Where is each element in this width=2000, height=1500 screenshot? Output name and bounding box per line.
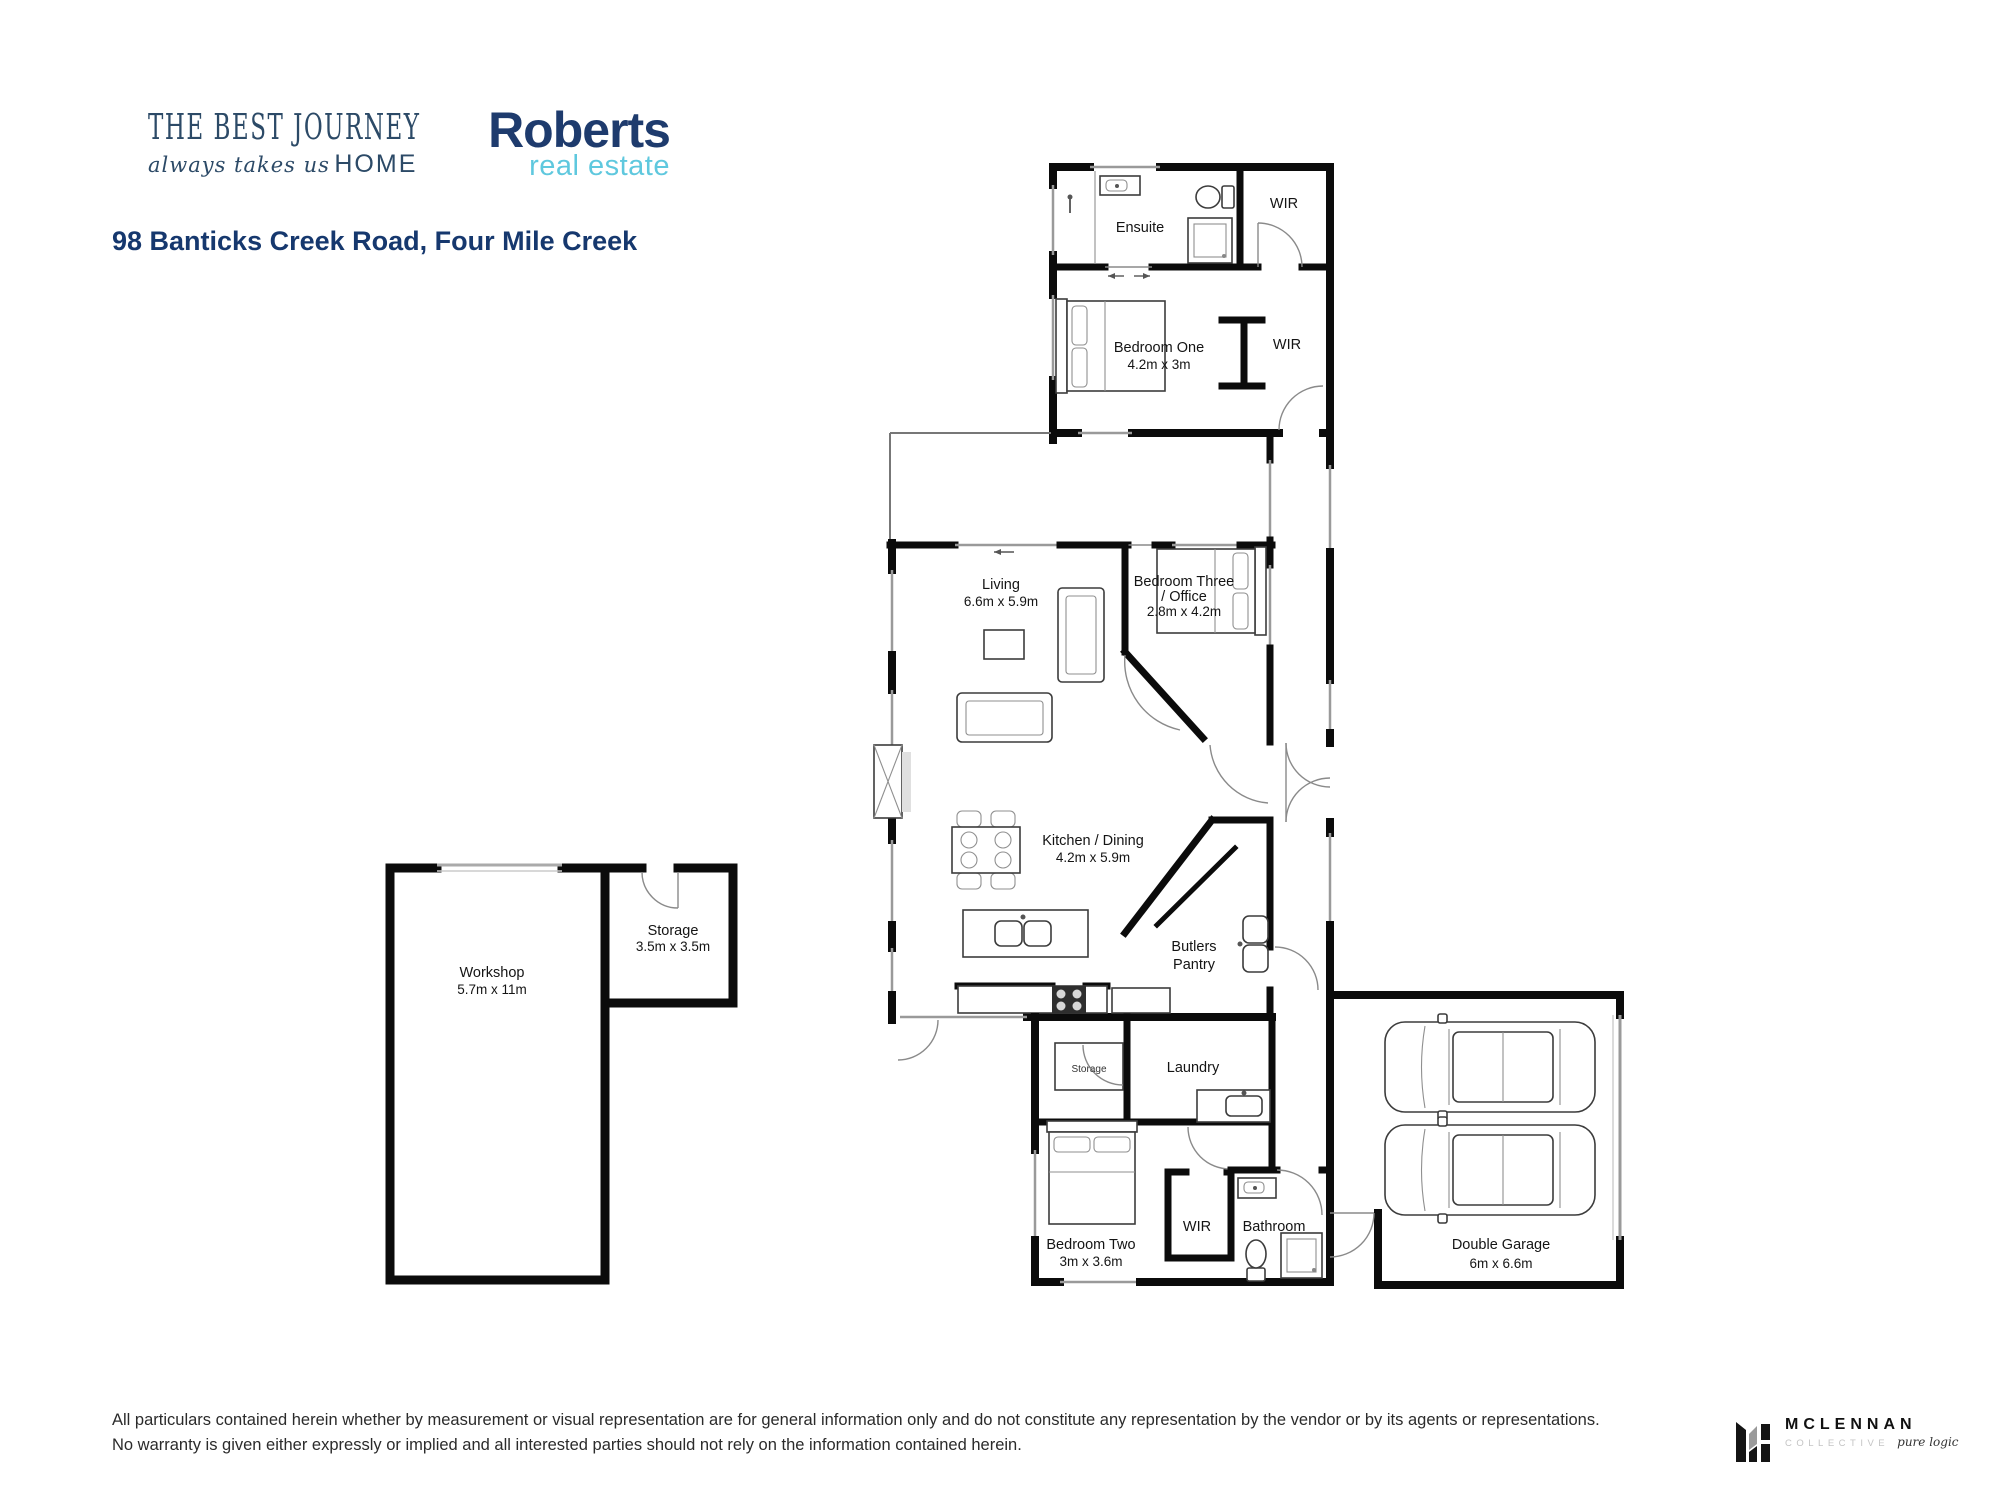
mclennan-logo-mark — [1733, 1416, 1775, 1464]
room-dims-double-garage: 6m x 6.6m — [1469, 1256, 1532, 1271]
room-dims-kitchen-dining: 4.2m x 5.9m — [1056, 850, 1130, 865]
room-label-storage-outbuilding: Storage — [648, 923, 699, 939]
room-dims-storage-outbuilding: 3.5m x 3.5m — [636, 939, 710, 954]
bedroom-two-bed — [1047, 1121, 1137, 1224]
room-label-laundry: Laundry — [1167, 1060, 1220, 1076]
disclaimer-line1: All particulars contained herein whether… — [112, 1408, 1632, 1433]
room-label-bedroom-one: Bedroom One — [1114, 340, 1204, 356]
mclennan-logo-text: MCLENNAN COLLECTIVE pure logic — [1785, 1416, 1959, 1449]
room-dims-bedroom-one: 4.2m x 3m — [1127, 357, 1190, 372]
garage-car-2 — [1385, 1117, 1595, 1223]
room-label-bedroom-two: Bedroom Two — [1046, 1237, 1135, 1253]
room-label-workshop: Workshop — [459, 965, 524, 981]
room-label-double-garage: Double Garage — [1452, 1237, 1550, 1253]
room-label-living: Living — [982, 577, 1020, 593]
floorplan-page: THE BEST JOURNEY always takes us HOME Ro… — [0, 0, 2000, 1500]
disclaimer: All particulars contained herein whether… — [112, 1408, 1632, 1458]
room-label-ensuite: Ensuite — [1116, 220, 1164, 236]
room-label-bathroom: Bathroom — [1243, 1219, 1306, 1235]
disclaimer-line2: No warranty is given either expressly or… — [112, 1433, 1632, 1458]
room-dims-bedroom-three: 2.8m x 4.2m — [1147, 604, 1221, 619]
room-label-wir3: WIR — [1183, 1219, 1211, 1235]
room-label-butlers: Butlers — [1171, 939, 1216, 955]
garage-car-1 — [1385, 1014, 1595, 1120]
floorplan-drawing: Ensuite WIR Bedroom One 4.2m x 3m WIR Li… — [0, 0, 2000, 1500]
room-label-bedroom-three-2: / Office — [1161, 589, 1207, 605]
mclennan-logo-name: MCLENNAN — [1785, 1416, 1959, 1434]
living-furniture — [957, 588, 1104, 742]
room-dims-bedroom-two: 3m x 3.6m — [1059, 1254, 1122, 1269]
room-dims-living: 6.6m x 5.9m — [964, 594, 1038, 609]
room-label-wir2: WIR — [1273, 337, 1301, 353]
room-label-storage-nook: Storage — [1071, 1064, 1106, 1075]
mclennan-logo: MCLENNAN COLLECTIVE pure logic — [1733, 1416, 1959, 1464]
room-label-bedroom-three: Bedroom Three — [1134, 574, 1234, 590]
room-label-kitchen-dining: Kitchen / Dining — [1042, 833, 1144, 849]
room-dims-workshop: 5.7m x 11m — [457, 982, 527, 997]
room-label-wir1: WIR — [1270, 196, 1298, 212]
mclennan-logo-tagline: pure logic — [1897, 1435, 1958, 1449]
entry-porch — [890, 433, 1051, 555]
room-label-pantry: Pantry — [1173, 957, 1216, 973]
mclennan-logo-sub: COLLECTIVE — [1785, 1438, 1889, 1449]
